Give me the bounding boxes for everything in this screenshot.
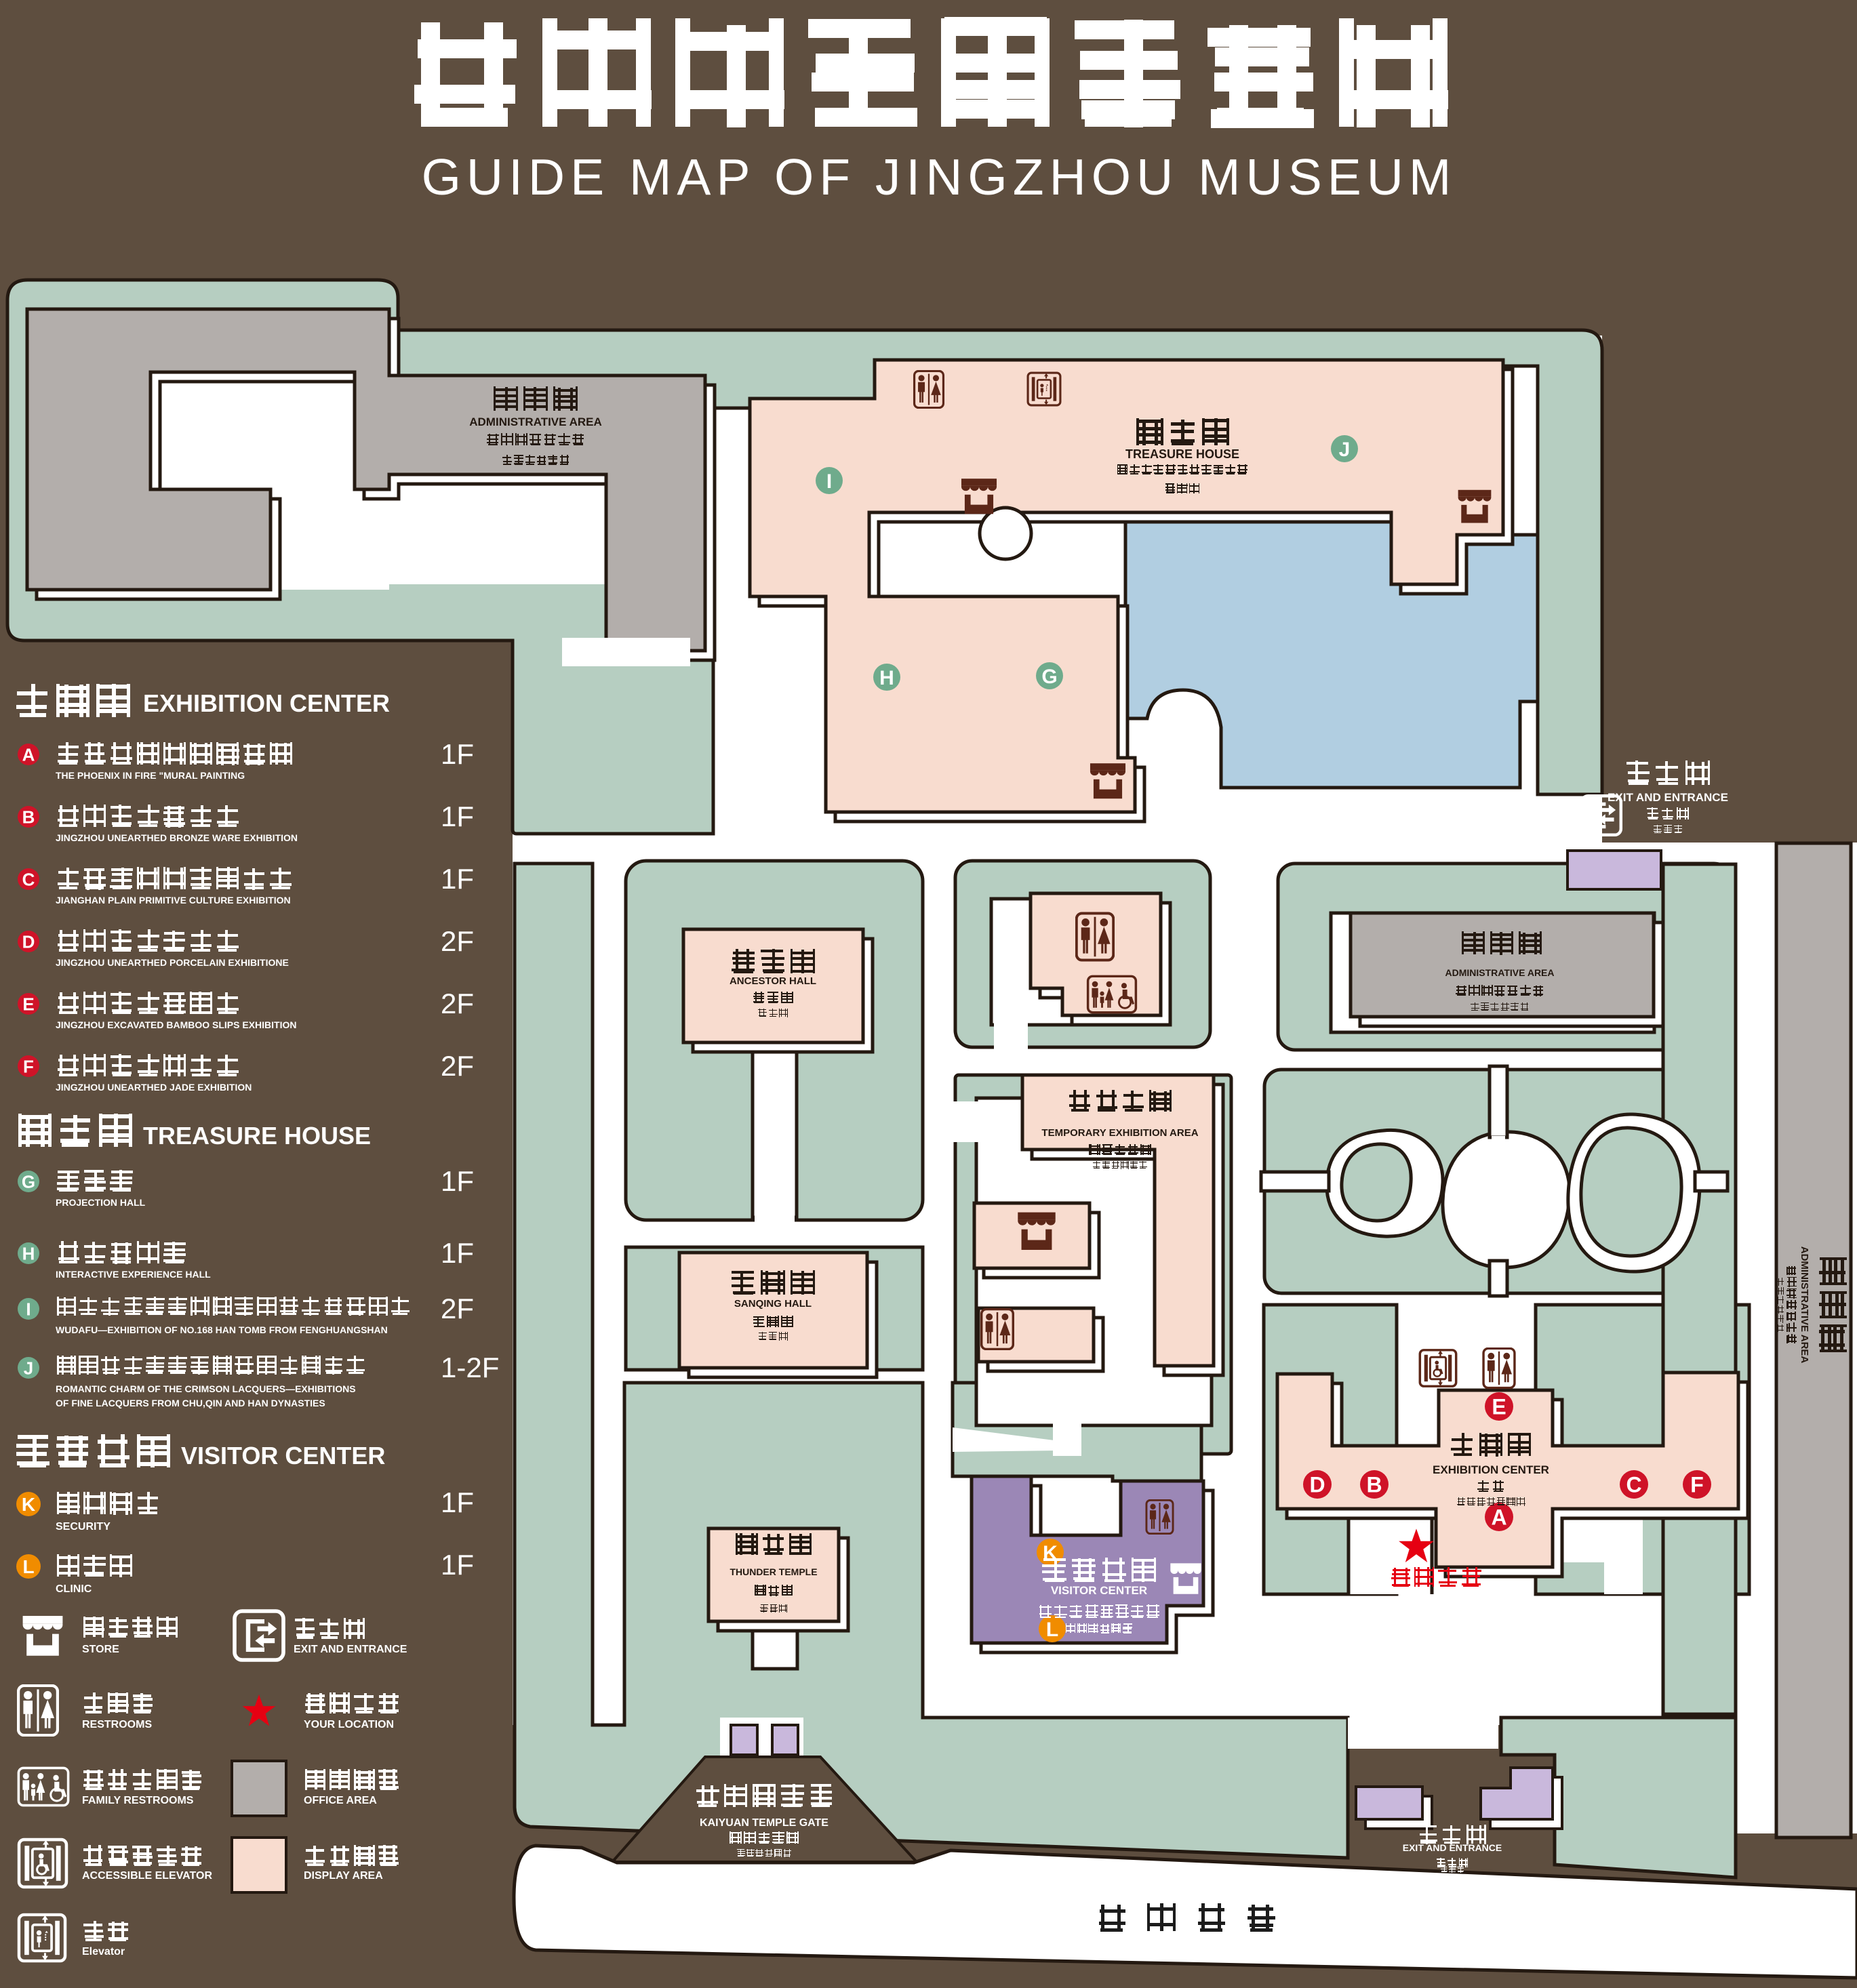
svg-text:JINGZHOU UNEARTHED PORCELAIN E: JINGZHOU UNEARTHED PORCELAIN EXHIBITIONE bbox=[56, 957, 289, 968]
svg-text:PROJECTION HALL: PROJECTION HALL bbox=[56, 1197, 146, 1208]
svg-text:KAIYUAN TEMPLE GATE: KAIYUAN TEMPLE GATE bbox=[700, 1817, 828, 1829]
svg-text:D: D bbox=[1309, 1472, 1325, 1497]
svg-text:INTERACTIVE EXPERIENCE HALL: INTERACTIVE EXPERIENCE HALL bbox=[56, 1269, 211, 1280]
svg-text:B: B bbox=[1366, 1472, 1382, 1497]
svg-text:TREASURE HOUSE: TREASURE HOUSE bbox=[143, 1122, 371, 1150]
svg-text:L: L bbox=[22, 1556, 34, 1577]
svg-text:ROMANTIC CHARM OF THE CRIMSON: ROMANTIC CHARM OF THE CRIMSON LACQUERS—E… bbox=[56, 1383, 356, 1394]
svg-text:1F: 1F bbox=[441, 1165, 474, 1197]
svg-text:1F: 1F bbox=[441, 1549, 474, 1581]
svg-text:C: C bbox=[22, 869, 35, 889]
svg-text:THE PHOENIX IN FIRE "MURAL PAI: THE PHOENIX IN FIRE "MURAL PAINTING bbox=[56, 770, 245, 781]
svg-text:2F: 2F bbox=[441, 925, 474, 957]
svg-text:L: L bbox=[1046, 1619, 1058, 1641]
svg-text:I: I bbox=[26, 1299, 31, 1319]
svg-text:1F: 1F bbox=[441, 800, 474, 832]
svg-text:OF FINE LACQUERS FROM CHU,QIN: OF FINE LACQUERS FROM CHU,QIN AND HAN DY… bbox=[56, 1398, 325, 1408]
svg-text:2F: 2F bbox=[441, 1293, 474, 1324]
svg-text:Elevator: Elevator bbox=[82, 1946, 125, 1957]
svg-text:J: J bbox=[1339, 439, 1351, 461]
svg-text:C: C bbox=[1626, 1472, 1641, 1497]
svg-text:A: A bbox=[22, 744, 35, 765]
svg-text:SANQING HALL: SANQING HALL bbox=[734, 1298, 812, 1310]
svg-text:GUIDE MAP OF JINGZHOU MUSEUM: GUIDE MAP OF JINGZHOU MUSEUM bbox=[422, 148, 1457, 205]
svg-text:EXIT AND ENTRANCE: EXIT AND ENTRANCE bbox=[1403, 1842, 1502, 1853]
svg-text:JIANGHAN PLAIN PRIMITIVE CULTU: JIANGHAN PLAIN PRIMITIVE CULTURE EXHIBIT… bbox=[56, 895, 291, 906]
svg-text:TREASURE HOUSE: TREASURE HOUSE bbox=[1125, 447, 1239, 461]
svg-text:D: D bbox=[22, 931, 35, 952]
svg-text:JINGZHOU UNEARTHED JADE EXHIBI: JINGZHOU UNEARTHED JADE EXHIBITION bbox=[56, 1082, 252, 1093]
svg-text:THUNDER TEMPLE: THUNDER TEMPLE bbox=[730, 1566, 817, 1577]
svg-text:TEMPORARY EXHIBITION AREA: TEMPORARY EXHIBITION AREA bbox=[1041, 1127, 1198, 1139]
svg-text:E: E bbox=[22, 994, 34, 1014]
svg-text:STORE: STORE bbox=[82, 1644, 119, 1655]
svg-text:B: B bbox=[22, 807, 35, 827]
svg-text:H: H bbox=[22, 1243, 35, 1263]
svg-text:SECURITY: SECURITY bbox=[56, 1521, 111, 1533]
svg-text:A: A bbox=[1491, 1505, 1506, 1529]
svg-text:OFFICE AREA: OFFICE AREA bbox=[304, 1795, 377, 1806]
svg-text:ADMINISTRATIVE AREA: ADMINISTRATIVE AREA bbox=[1445, 967, 1555, 978]
svg-text:FAMILY RESTROOMS: FAMILY RESTROOMS bbox=[82, 1795, 194, 1806]
svg-text:H: H bbox=[879, 667, 894, 689]
svg-text:1F: 1F bbox=[441, 1237, 474, 1269]
svg-text:EXHIBITION CENTER: EXHIBITION CENTER bbox=[143, 689, 390, 717]
svg-text:VISITOR CENTER: VISITOR CENTER bbox=[1051, 1584, 1147, 1597]
svg-text:1F: 1F bbox=[441, 863, 474, 895]
svg-text:G: G bbox=[22, 1171, 35, 1192]
svg-text:2F: 2F bbox=[441, 1050, 474, 1082]
svg-text:JINGZHOU UNEARTHED BRONZE WARE: JINGZHOU UNEARTHED BRONZE WARE EXHIBITIO… bbox=[56, 832, 298, 843]
svg-text:ADMINISTRATIVE AREA: ADMINISTRATIVE AREA bbox=[469, 415, 602, 428]
svg-text:ACCESSIBLE ELEVATOR: ACCESSIBLE ELEVATOR bbox=[82, 1870, 212, 1882]
svg-text:F: F bbox=[23, 1056, 34, 1076]
svg-text:EXHIBITION CENTER: EXHIBITION CENTER bbox=[1433, 1463, 1549, 1476]
svg-text:CLINIC: CLINIC bbox=[56, 1583, 92, 1595]
svg-text:ADMINISTRATIVE AREA: ADMINISTRATIVE AREA bbox=[1799, 1246, 1810, 1364]
svg-text:E: E bbox=[1492, 1394, 1506, 1419]
svg-text:ANCESTOR HALL: ANCESTOR HALL bbox=[730, 975, 816, 987]
svg-text:VISITOR CENTER: VISITOR CENTER bbox=[181, 1442, 385, 1469]
svg-text:K: K bbox=[22, 1494, 35, 1515]
svg-text:DISPLAY AREA: DISPLAY AREA bbox=[304, 1870, 383, 1882]
svg-text:1F: 1F bbox=[441, 1486, 474, 1518]
svg-text:EXIT AND ENTRANCE: EXIT AND ENTRANCE bbox=[1608, 791, 1728, 804]
svg-text:2F: 2F bbox=[441, 988, 474, 1019]
svg-text:JINGZHOU EXCAVATED BAMBOO SLIP: JINGZHOU EXCAVATED BAMBOO SLIPS EXHIBITI… bbox=[56, 1019, 296, 1030]
svg-text:I: I bbox=[826, 470, 832, 493]
svg-text:J: J bbox=[24, 1358, 33, 1378]
svg-text:F: F bbox=[1690, 1472, 1704, 1497]
svg-text:1-2F: 1-2F bbox=[441, 1352, 499, 1383]
svg-text:EXIT AND ENTRANCE: EXIT AND ENTRANCE bbox=[294, 1644, 407, 1655]
svg-text:YOUR LOCATION: YOUR LOCATION bbox=[304, 1719, 394, 1730]
svg-text:1F: 1F bbox=[441, 738, 474, 770]
svg-text:G: G bbox=[1041, 666, 1057, 688]
svg-text:RESTROOMS: RESTROOMS bbox=[82, 1719, 152, 1730]
svg-text:WUDAFU—EXHIBITION OF NO.168 HA: WUDAFU—EXHIBITION OF NO.168 HAN TOMB FRO… bbox=[56, 1324, 388, 1335]
